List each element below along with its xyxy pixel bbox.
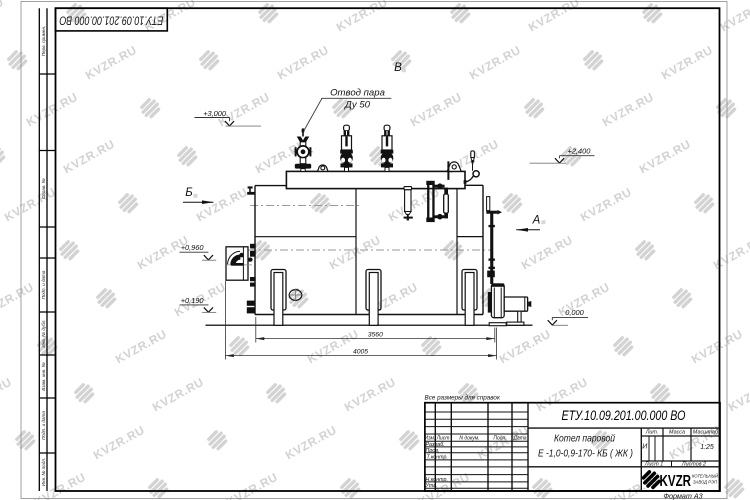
svg-text:KVZR.RU: KVZR.RU bbox=[600, 90, 656, 130]
svg-text:Т.контр.: Т.контр. bbox=[427, 455, 448, 461]
svg-text:KVZR.RU: KVZR.RU bbox=[2, 185, 58, 225]
svg-text:Инв. № дубл.: Инв. № дубл. bbox=[41, 319, 46, 347]
svg-text:Е -1,0-0,9-170- КБ ( ЖК ): Е -1,0-0,9-170- КБ ( ЖК ) bbox=[538, 449, 633, 460]
svg-text:Ду 50: Ду 50 bbox=[344, 100, 371, 111]
svg-text:3560: 3560 bbox=[368, 332, 383, 339]
svg-text:KVZR.RU: KVZR.RU bbox=[61, 137, 117, 177]
svg-text:Котел паровой: Котел паровой bbox=[554, 434, 615, 445]
svg-text:KVZR: KVZR bbox=[660, 473, 692, 490]
svg-text:KVZR.RU: KVZR.RU bbox=[467, 43, 523, 83]
svg-text:Инв. № подл.: Инв. № подл. bbox=[41, 458, 46, 487]
svg-text:Все размеры для справок: Все размеры для справок bbox=[425, 393, 501, 401]
svg-text:Дата: Дата bbox=[512, 436, 526, 442]
svg-text:Пров.: Пров. bbox=[426, 448, 440, 454]
svg-text:ЕТУ.10.09.201.00.000 ВО: ЕТУ.10.09.201.00.000 ВО bbox=[562, 407, 686, 423]
svg-text:Масса: Масса bbox=[669, 430, 685, 436]
svg-text:Подп. и дата: Подп. и дата bbox=[41, 411, 46, 440]
svg-text:KVZR.RU: KVZR.RU bbox=[0, 280, 36, 320]
svg-text:KVZR.RU: KVZR.RU bbox=[83, 43, 139, 83]
svg-text:KVZR.RU: KVZR.RU bbox=[526, 0, 582, 34]
svg-text:KVZR.RU: KVZR.RU bbox=[305, 327, 361, 367]
svg-text:KVZR.RU: KVZR.RU bbox=[275, 43, 331, 83]
svg-text:А: А bbox=[532, 215, 541, 227]
svg-text:+0,960: +0,960 bbox=[181, 243, 205, 252]
svg-text:+2,400: +2,400 bbox=[568, 146, 592, 155]
svg-text:KVZR.RU: KVZR.RU bbox=[283, 423, 339, 463]
svg-text:KVZR.RU: KVZR.RU bbox=[718, 0, 750, 34]
svg-text:KVZR.RU: KVZR.RU bbox=[689, 327, 745, 367]
svg-text:KVZR.RU: KVZR.RU bbox=[0, 0, 6, 34]
svg-text:Отвод пара: Отвод пара bbox=[330, 88, 385, 99]
svg-text:ЗАВОД РЭП: ЗАВОД РЭП bbox=[693, 480, 718, 485]
svg-text:KVZR.RU: KVZR.RU bbox=[711, 233, 750, 273]
svg-text:+0,190: +0,190 bbox=[181, 296, 205, 305]
svg-text:ЕТУ.10.09.201.00.000 ВО: ЕТУ.10.09.201.00.000 ВО bbox=[59, 14, 163, 26]
svg-text:+3,000: +3,000 bbox=[203, 109, 227, 118]
svg-text:KVZR.RU: KVZR.RU bbox=[342, 375, 398, 415]
svg-text:KVZR.RU: KVZR.RU bbox=[578, 185, 634, 225]
svg-text:KVZR.RU: KVZR.RU bbox=[334, 0, 390, 34]
svg-text:KVZR.RU: KVZR.RU bbox=[150, 375, 206, 415]
svg-text:Н.контр.: Н.контр. bbox=[426, 477, 448, 483]
svg-text:KVZR.RU: KVZR.RU bbox=[113, 327, 169, 367]
svg-text:Утв.: Утв. bbox=[426, 483, 438, 489]
svg-text:KVZR.RU: KVZR.RU bbox=[475, 423, 531, 463]
svg-text:KVZR.RU: KVZR.RU bbox=[726, 375, 750, 415]
svg-text:Перв. примен.: Перв. примен. bbox=[41, 26, 46, 57]
svg-text:Взам. инв. №: Взам. инв. № bbox=[41, 362, 46, 390]
svg-text:Подп.: Подп. bbox=[493, 436, 506, 442]
svg-text:Б: Б bbox=[185, 187, 193, 199]
svg-text:KVZR.RU: KVZR.RU bbox=[408, 90, 464, 130]
svg-text:И: И bbox=[642, 443, 648, 450]
svg-text:Подп. и дата: Подп. и дата bbox=[41, 270, 46, 299]
svg-text:Масштаб: Масштаб bbox=[693, 430, 719, 436]
svg-text:Изм.: Изм. bbox=[425, 436, 436, 442]
svg-text:KVZR.RU: KVZR.RU bbox=[224, 470, 280, 500]
svg-text:1:25: 1:25 bbox=[700, 444, 714, 451]
svg-text:KVZR.RU: KVZR.RU bbox=[194, 185, 250, 225]
svg-text:KVZR.RU: KVZR.RU bbox=[91, 423, 147, 463]
svg-text:KVZR.RU: KVZR.RU bbox=[497, 327, 553, 367]
svg-text:N докум.: N докум. bbox=[459, 436, 479, 442]
svg-text:KVZR.RU: KVZR.RU bbox=[0, 375, 14, 415]
svg-text:KVZR.RU: KVZR.RU bbox=[637, 137, 693, 177]
svg-text:KVZR.RU: KVZR.RU bbox=[24, 90, 80, 130]
svg-text:0,000: 0,000 bbox=[565, 308, 584, 317]
svg-text:Листов 2: Листов 2 bbox=[681, 462, 706, 468]
svg-text:В: В bbox=[394, 62, 402, 74]
svg-text:4005: 4005 bbox=[353, 349, 368, 356]
svg-text:Лист 1: Лист 1 bbox=[644, 462, 663, 468]
svg-text:KVZR.RU: KVZR.RU bbox=[659, 43, 715, 83]
svg-text:Справ. №: Справ. № bbox=[41, 178, 46, 199]
svg-text:KVZR.RU: KVZR.RU bbox=[327, 233, 383, 273]
svg-text:Формат А3: Формат А3 bbox=[663, 491, 702, 500]
svg-text:KVZR.RU: KVZR.RU bbox=[519, 233, 575, 273]
svg-text:КОТЕЛЬНЫЙ: КОТЕЛЬНЫЙ bbox=[692, 474, 718, 479]
svg-text:Лит.: Лит. bbox=[645, 430, 659, 436]
svg-text:Лист: Лист bbox=[436, 436, 450, 442]
